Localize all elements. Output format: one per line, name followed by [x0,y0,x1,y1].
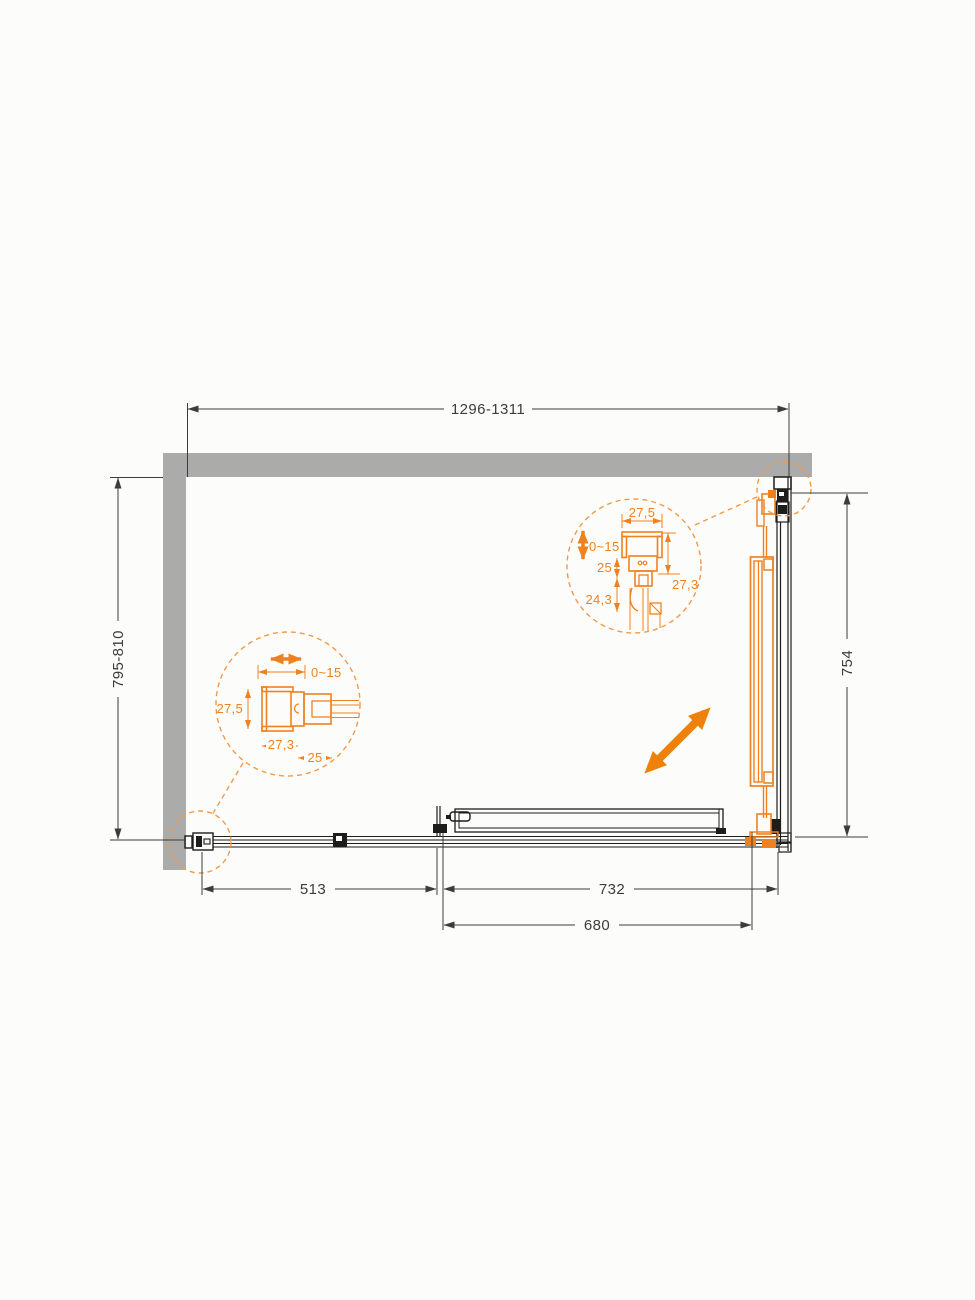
highlighted-side-door [745,490,778,848]
fixed-segment-label: 513 [300,881,326,898]
sliding-door-front [433,806,726,836]
top-width-label: 1296-1311 [451,401,525,418]
rail-connector [333,833,347,847]
side-profile-detail: 0~15 27,5 27,3 25 [216,659,359,765]
door-width-label: 732 [599,881,625,898]
side-detail-25-label: 25 [307,750,322,765]
opening-width-label: 680 [584,917,610,934]
top-detail-25-label: 25 [597,560,612,575]
side-panel-label: 754 [839,650,856,676]
door-guide [433,824,447,833]
installation-diagram-page: 27,5 0~15 25 24,3 27,3 [0,0,975,1300]
left-wall [163,453,186,870]
side-detail-273-label: 27,3 [268,737,295,752]
left-depth-label: 795-810 [110,630,127,688]
bottom-rail [185,833,788,850]
enclosure-structure [185,477,791,852]
bottom-corner-fitting [745,786,778,848]
top-detail-273-label: 27,3 [672,577,699,592]
side-detail-height-label: 27,5 [216,701,243,716]
installation-diagram: 27,5 0~15 25 24,3 27,3 [0,0,975,1300]
top-profile-detail: 27,5 0~15 25 24,3 27,3 [583,505,699,631]
open-direction-arrow-icon [650,713,705,768]
top-detail-width-label: 27,5 [629,505,656,520]
detail-callouts: 27,5 0~15 25 24,3 27,3 [169,462,811,873]
top-detail-adjust-label: 0~15 [589,539,619,554]
door-roller [716,828,726,834]
top-detail-243-label: 24,3 [585,592,612,607]
side-detail-adjust-label: 0~15 [311,665,341,680]
side-panel-right [771,477,791,852]
top-wall [163,453,812,477]
wall-profile-left [185,833,213,850]
dimension-right-side: 754 [791,493,868,837]
